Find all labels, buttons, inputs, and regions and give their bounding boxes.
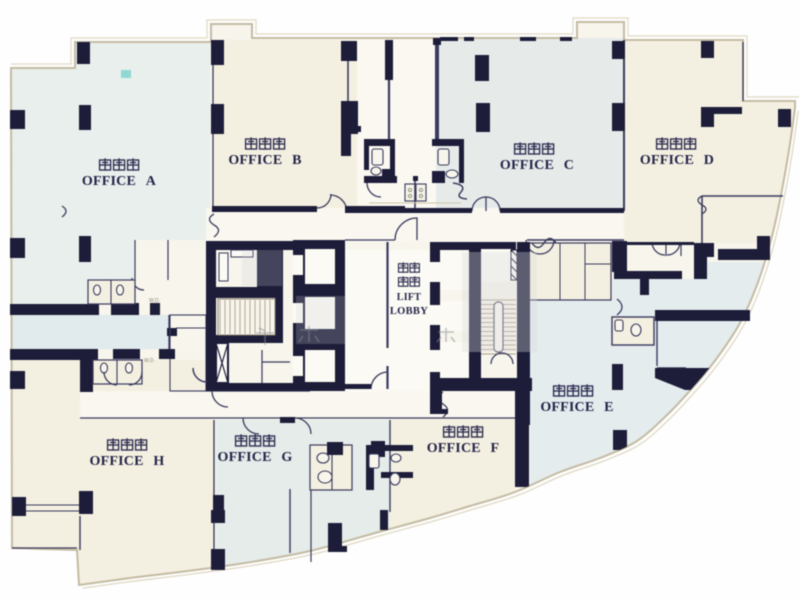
svg-text:OFFICE A: OFFICE A bbox=[82, 174, 157, 189]
svg-text:W.D.: W.D. bbox=[144, 358, 155, 364]
svg-text:OFFICE H: OFFICE H bbox=[90, 454, 165, 469]
svg-text:OFFICE E: OFFICE E bbox=[540, 400, 613, 415]
svg-text:OFFICE C: OFFICE C bbox=[500, 158, 574, 173]
svg-text:LIFT: LIFT bbox=[397, 292, 422, 303]
svg-text:OFFICE G: OFFICE G bbox=[218, 450, 293, 465]
svg-text:OFFICE F: OFFICE F bbox=[427, 441, 500, 456]
svg-text:W.D.: W.D. bbox=[149, 298, 160, 304]
svg-text:LOBBY: LOBBY bbox=[390, 306, 428, 317]
svg-text:OFFICE D: OFFICE D bbox=[640, 153, 714, 168]
svg-text:OFFICE B: OFFICE B bbox=[228, 153, 301, 168]
